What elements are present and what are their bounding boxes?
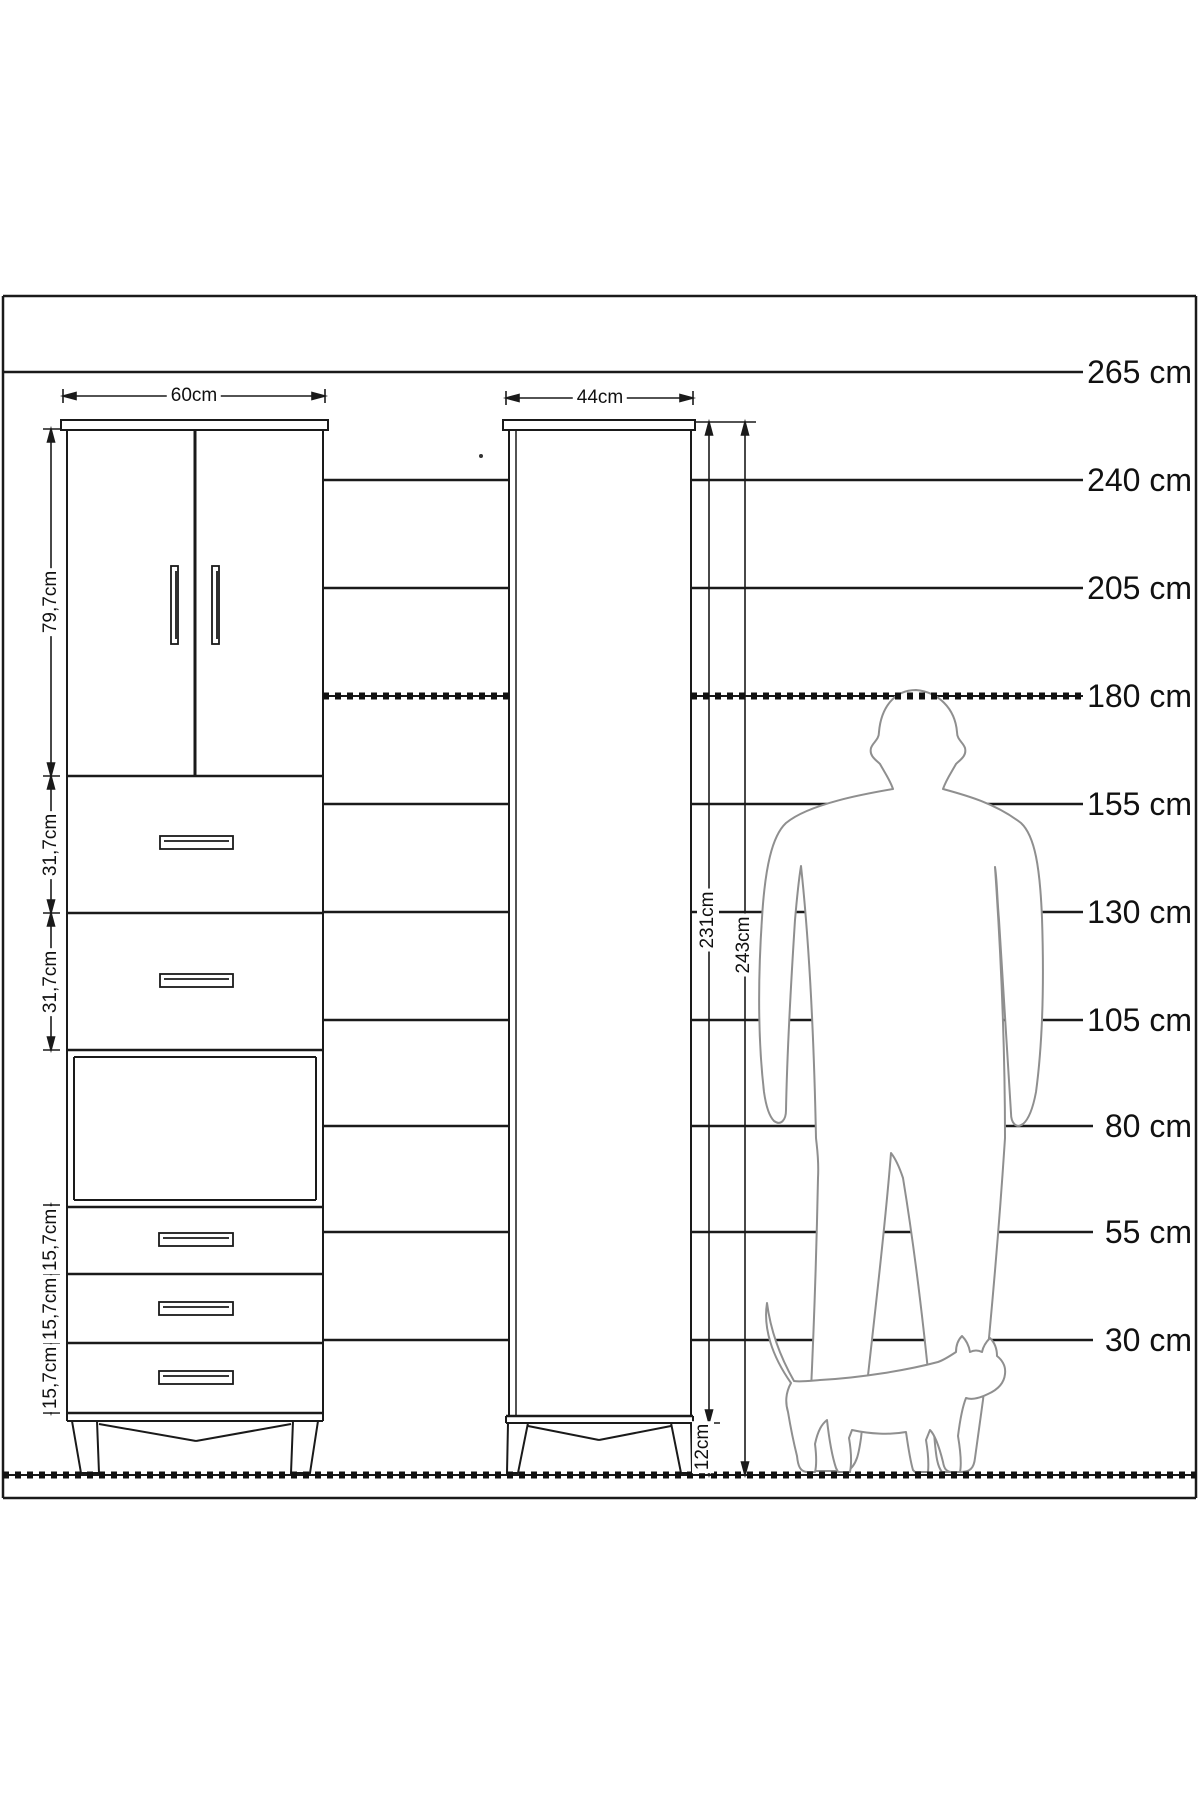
drawer-handle-1	[160, 836, 233, 849]
section-label-drawer1: 31,7cm	[40, 811, 62, 879]
drawer-handle-5	[159, 1371, 233, 1384]
door-handle-right	[212, 566, 219, 644]
carcass-height-label: 231cm	[697, 888, 719, 951]
side-view-cabinet	[503, 420, 695, 1473]
dimension-lines	[43, 389, 756, 1475]
scale-label-30: 30 cm	[1101, 1321, 1192, 1359]
front-top-board	[61, 420, 328, 430]
section-label-small-drawer1: 15,7cm	[40, 1206, 62, 1274]
technical-drawing-canvas	[0, 0, 1200, 1800]
section-label-small-drawer2: 15,7cm	[40, 1275, 62, 1343]
scale-figures	[759, 690, 1043, 1472]
side-width-label: 44cm	[573, 387, 627, 409]
section-label-drawer2: 31,7cm	[40, 948, 62, 1016]
furniture-dimension-diagram: 265 cm 240 cm 205 cm 180 cm 155 cm 130 c…	[0, 0, 1200, 1800]
total-height-label: 243cm	[733, 913, 755, 976]
drawer-handle-3	[159, 1233, 233, 1246]
front-view-cabinet	[61, 420, 328, 1473]
scale-label-55: 55 cm	[1101, 1213, 1192, 1251]
side-cabinet-legs	[507, 1423, 692, 1473]
scale-label-265: 265 cm	[1083, 353, 1192, 391]
scale-label-130: 130 cm	[1083, 893, 1192, 931]
ink-dot	[479, 454, 483, 458]
section-label-small-drawer3: 15,7cm	[40, 1344, 62, 1412]
side-top-board	[503, 420, 695, 430]
scale-label-80: 80 cm	[1101, 1107, 1192, 1145]
scale-label-180: 180 cm	[1083, 677, 1192, 715]
scale-label-240: 240 cm	[1083, 461, 1192, 499]
man-silhouette	[759, 690, 1043, 1472]
scale-label-105: 105 cm	[1083, 1001, 1192, 1039]
drawer-handle-4	[159, 1302, 233, 1315]
leg-height-label: 12cm	[692, 1421, 714, 1473]
drawer-handle-2	[160, 974, 233, 987]
door-handle-left	[171, 566, 178, 644]
front-cabinet-legs	[72, 1421, 318, 1473]
section-label-doors: 79,7cm	[40, 568, 62, 636]
scale-label-205: 205 cm	[1083, 569, 1192, 607]
scale-label-155: 155 cm	[1083, 785, 1192, 823]
front-width-label: 60cm	[167, 385, 221, 407]
open-shelf	[74, 1057, 316, 1200]
